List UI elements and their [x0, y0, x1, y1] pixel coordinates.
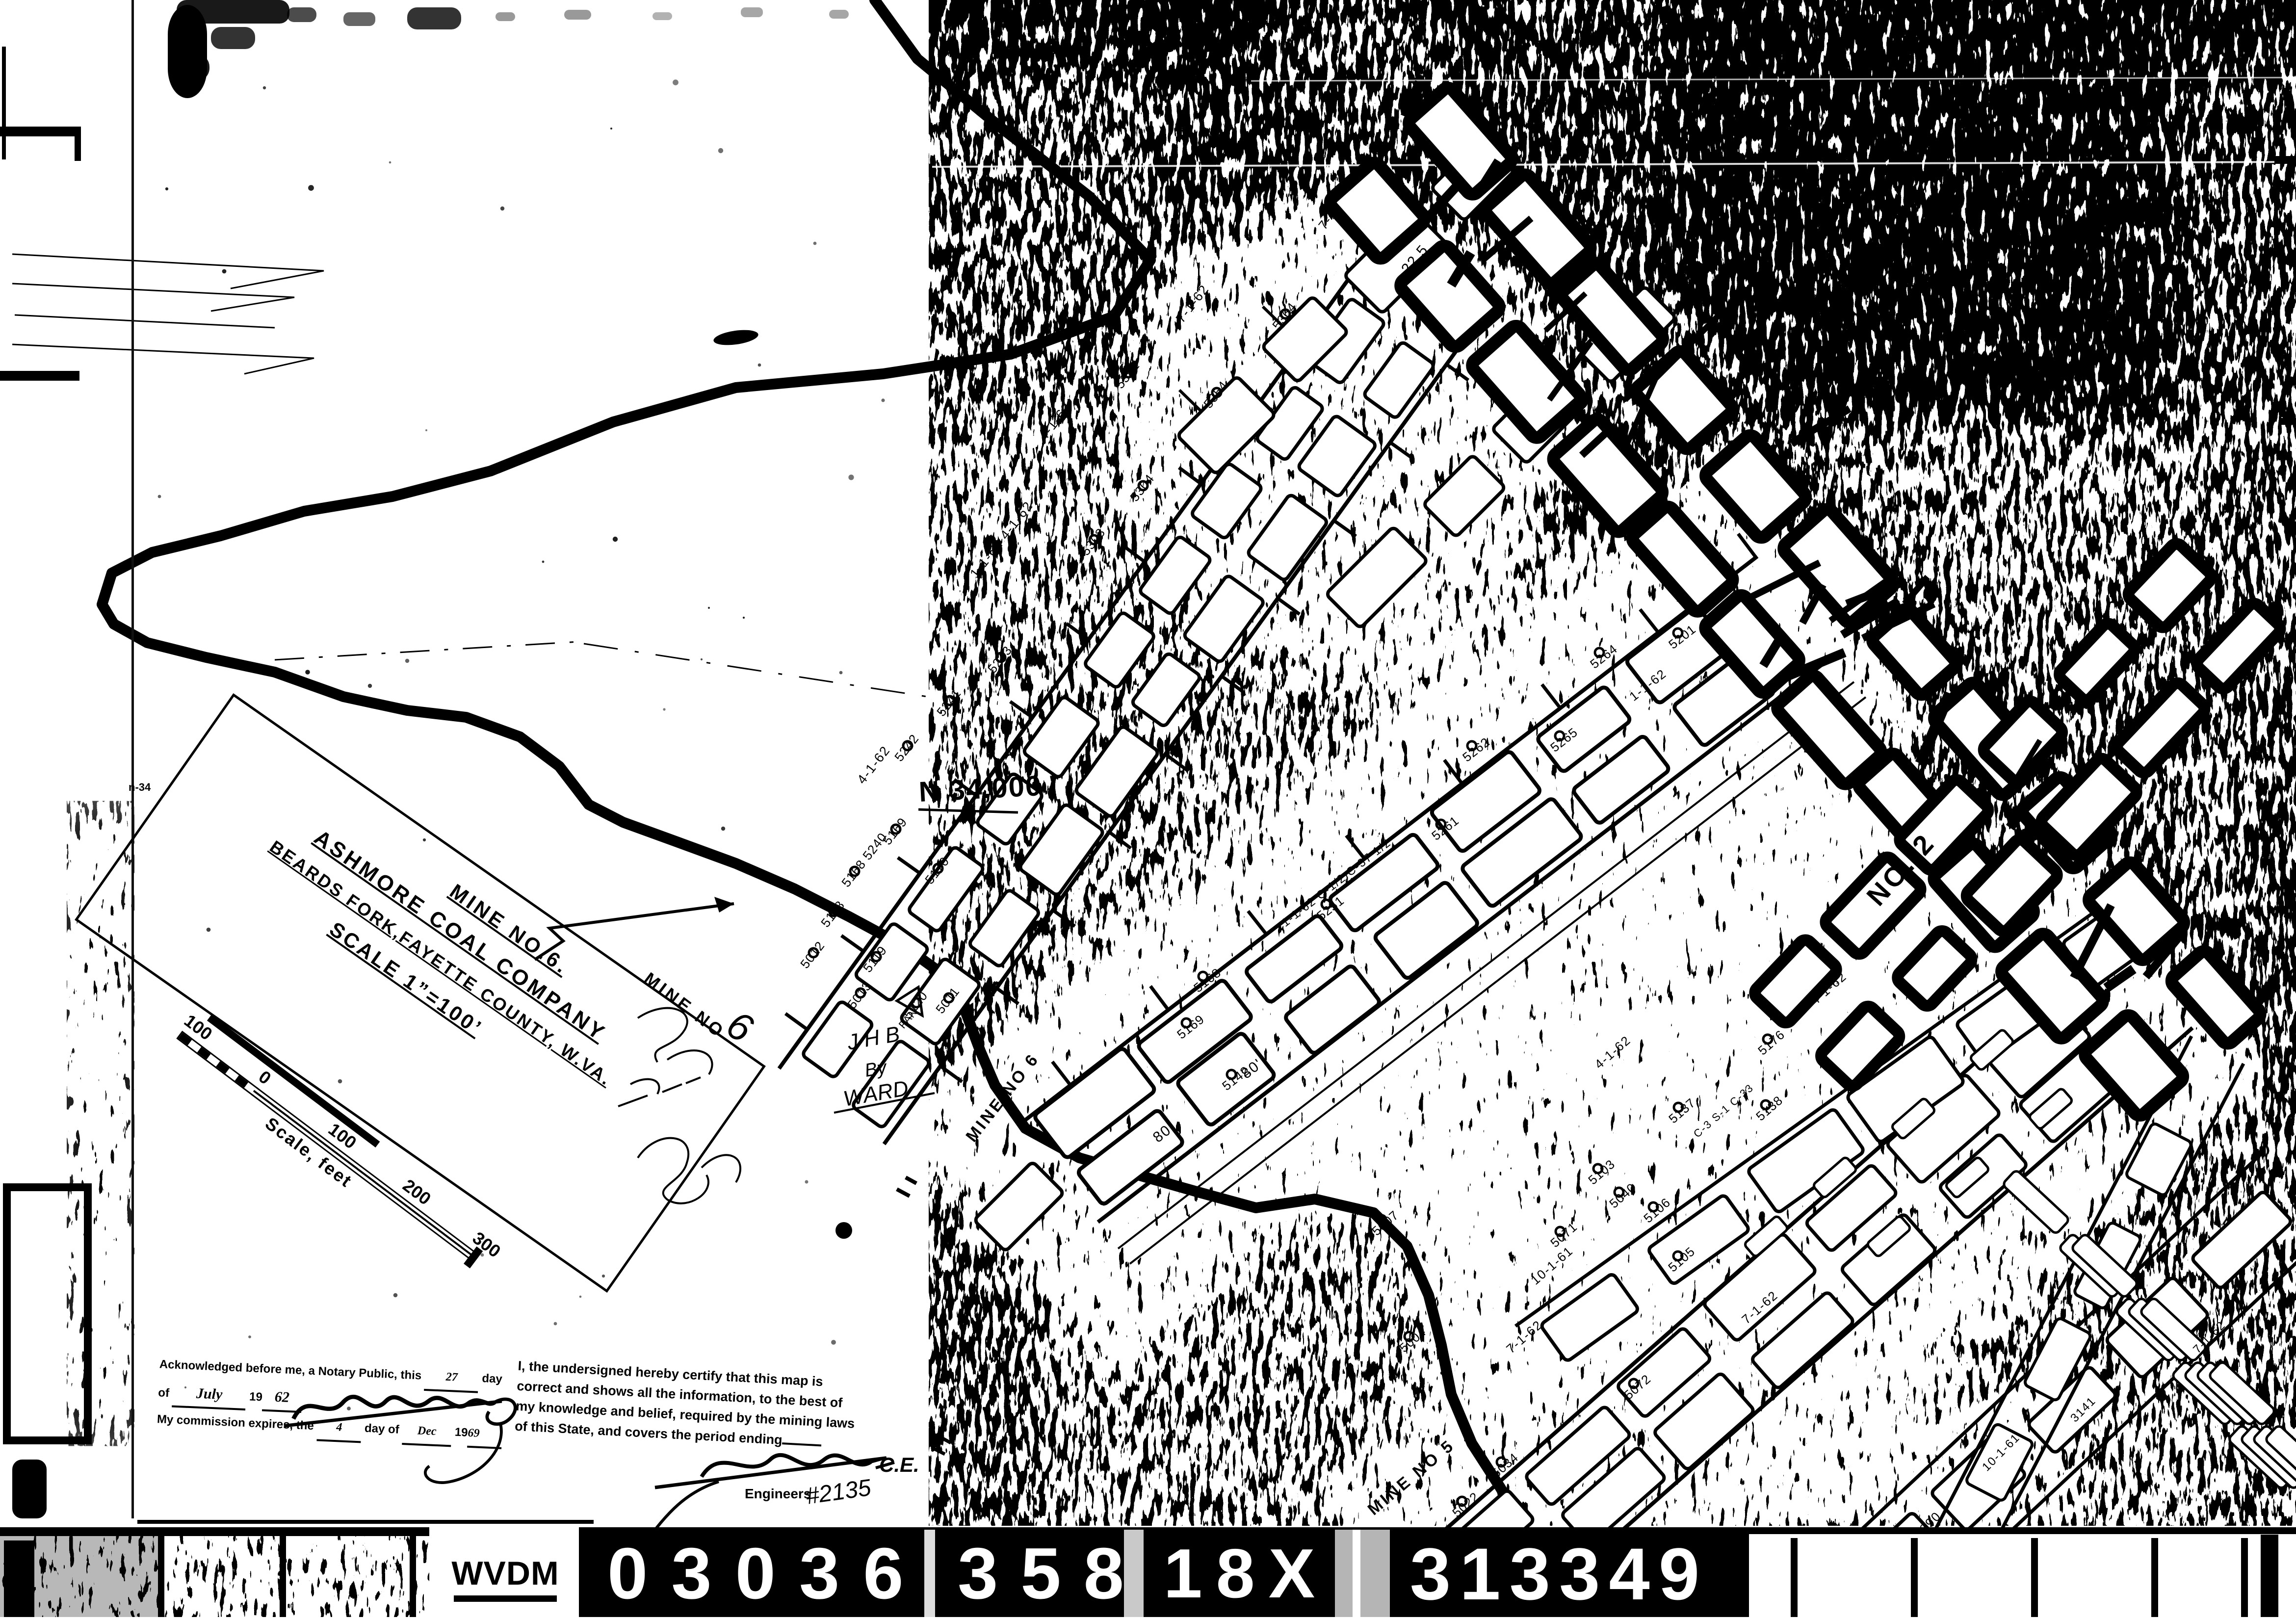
svg-text:Engineers: Engineers [745, 1486, 811, 1501]
svg-text:C.E.: C.E. [879, 1453, 919, 1476]
svg-text:5169: 5169 [880, 814, 910, 847]
svg-text:5012: 5012 [797, 938, 828, 971]
svg-text:N 34,000: N 34,000 [918, 770, 1043, 808]
svg-text:#2135: #2135 [804, 1475, 873, 1510]
svg-text:4-1-62: 4-1-62 [854, 743, 893, 786]
svg-text:5242: 5242 [891, 731, 922, 764]
